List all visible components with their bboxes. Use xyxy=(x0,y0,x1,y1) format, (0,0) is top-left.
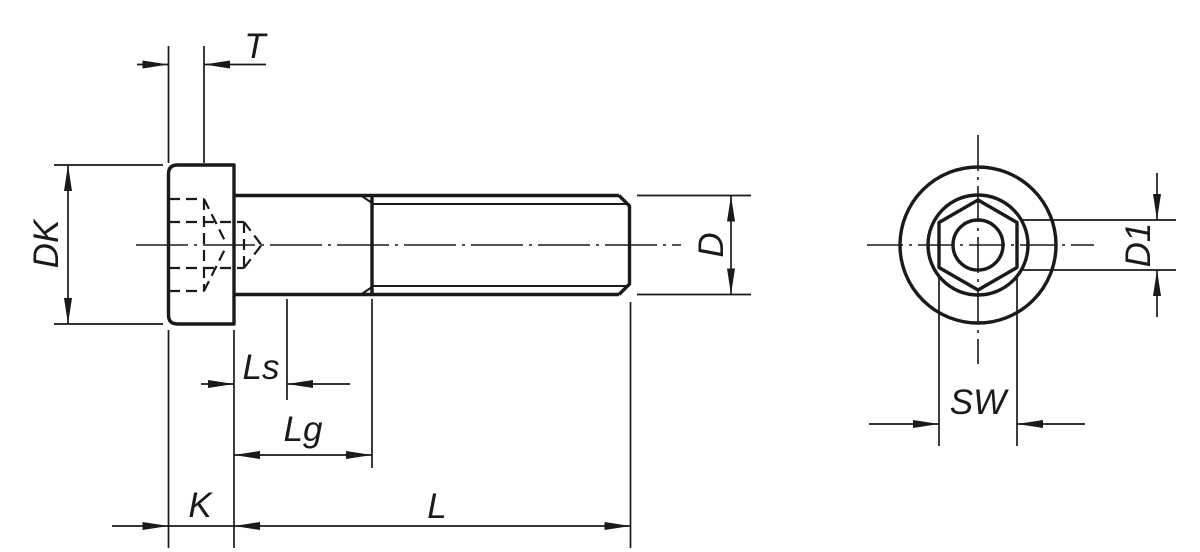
ls-label: Ls xyxy=(243,348,280,387)
lg-label: Lg xyxy=(284,410,323,449)
d-label: D xyxy=(692,232,731,257)
t-extension-lines xyxy=(169,46,205,163)
k-l-extension-lines xyxy=(169,302,631,548)
dimension-SW: SW xyxy=(869,276,1085,446)
l-label: L xyxy=(427,487,446,526)
dimension-Ls: Ls xyxy=(201,299,350,400)
screw-side-view xyxy=(136,165,681,324)
t-label: T xyxy=(244,27,268,66)
d1-label: D1 xyxy=(1119,223,1158,268)
technical-drawing-canvas: T DK D Ls Lg K L xyxy=(0,0,1200,552)
sw-label: SW xyxy=(950,383,1009,422)
k-label: K xyxy=(188,486,213,525)
screw-end-view xyxy=(867,135,1094,364)
dimension-T: T xyxy=(137,27,268,163)
dk-label: DK xyxy=(27,218,66,268)
technical-drawing-page: T DK D Ls Lg K L xyxy=(0,0,1200,552)
